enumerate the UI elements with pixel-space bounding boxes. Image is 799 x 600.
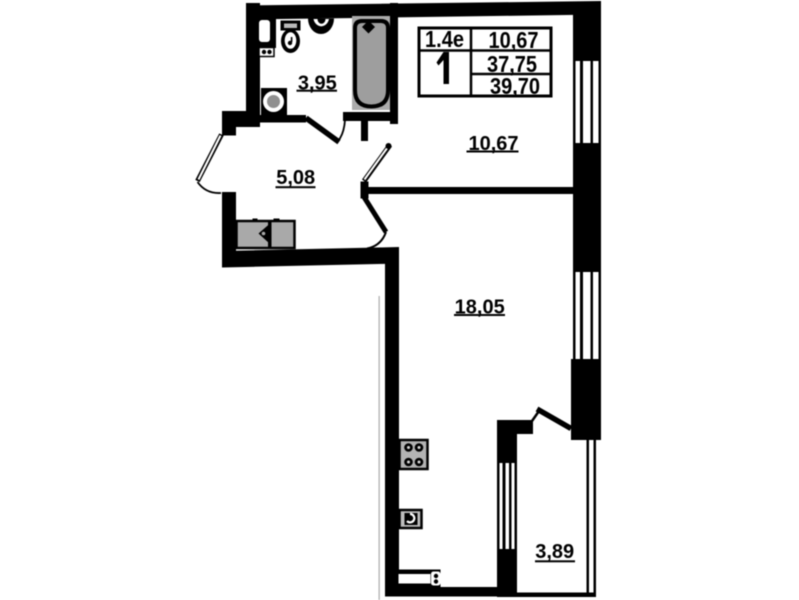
svg-text:5,08: 5,08: [276, 167, 315, 189]
svg-text:10,67: 10,67: [488, 27, 538, 54]
svg-text:1.4e: 1.4e: [425, 26, 464, 53]
svg-text:3,89: 3,89: [535, 541, 574, 563]
svg-text:39,70: 39,70: [490, 73, 540, 100]
